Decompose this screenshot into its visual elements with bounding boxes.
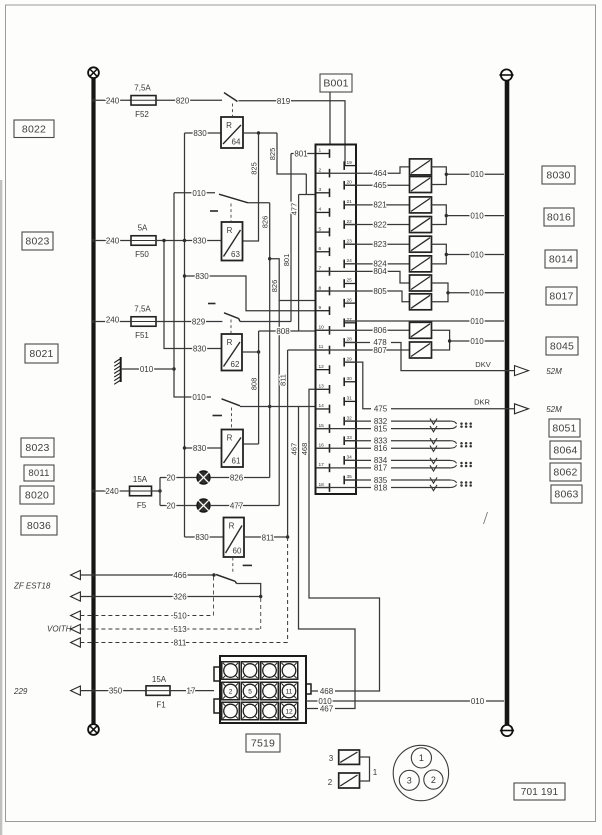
svg-text:826: 826 (270, 280, 279, 293)
svg-text:477: 477 (230, 502, 244, 511)
svg-text:23: 23 (347, 238, 353, 244)
svg-text:17: 17 (319, 462, 325, 468)
svg-text:010: 010 (470, 337, 484, 346)
svg-text:478: 478 (373, 338, 387, 347)
svg-text:8: 8 (319, 285, 322, 291)
svg-text:8017: 8017 (549, 291, 573, 303)
svg-text:801: 801 (294, 150, 308, 159)
svg-text:805: 805 (373, 287, 387, 296)
svg-text:52M: 52M (546, 367, 562, 376)
svg-text:11: 11 (319, 344, 324, 350)
svg-text:3: 3 (407, 776, 412, 786)
svg-text:808: 808 (276, 327, 290, 336)
svg-text:825: 825 (250, 162, 259, 175)
svg-text:010: 010 (471, 697, 485, 706)
svg-text:20: 20 (167, 502, 176, 511)
svg-text:62: 62 (231, 360, 240, 369)
svg-text:701 191: 701 191 (521, 787, 559, 798)
svg-text:16: 16 (319, 442, 325, 448)
svg-text:63: 63 (231, 250, 240, 259)
svg-text:25: 25 (347, 278, 353, 284)
svg-text:31: 31 (347, 396, 353, 402)
svg-text:15A: 15A (152, 675, 167, 684)
svg-text:010: 010 (192, 393, 206, 402)
svg-text:1: 1 (419, 753, 424, 763)
svg-text:7,5A: 7,5A (134, 84, 151, 93)
svg-text:010: 010 (192, 189, 206, 198)
svg-text:33: 33 (347, 435, 353, 441)
svg-text:7,5A: 7,5A (134, 305, 151, 314)
svg-text:VOITH: VOITH (47, 625, 72, 634)
svg-text:28: 28 (347, 337, 353, 343)
svg-text:19: 19 (347, 160, 353, 166)
svg-text:8062: 8062 (553, 467, 577, 479)
svg-text:464: 464 (373, 169, 387, 178)
svg-text:1: 1 (319, 148, 322, 154)
svg-text:26: 26 (347, 297, 353, 303)
svg-text:822: 822 (373, 220, 387, 229)
svg-text:821: 821 (373, 201, 387, 210)
svg-text:R: R (227, 338, 233, 347)
svg-text:4: 4 (319, 207, 322, 213)
svg-text:829: 829 (192, 318, 206, 327)
svg-text:20: 20 (167, 474, 176, 483)
svg-text:820: 820 (176, 96, 190, 105)
svg-text:510: 510 (173, 612, 187, 621)
svg-text:467: 467 (290, 443, 299, 456)
svg-text:830: 830 (193, 237, 207, 246)
svg-text:2: 2 (229, 688, 233, 695)
svg-text:830: 830 (195, 533, 209, 542)
svg-text:61: 61 (232, 457, 241, 466)
svg-text:20: 20 (347, 179, 353, 185)
svg-text:DKV: DKV (475, 360, 490, 369)
svg-text:8045: 8045 (550, 341, 574, 353)
svg-text:819: 819 (277, 97, 291, 106)
svg-text:240: 240 (106, 96, 120, 105)
svg-text:2: 2 (319, 167, 322, 173)
svg-text:465: 465 (373, 181, 387, 190)
svg-text:477: 477 (290, 203, 299, 216)
svg-text:24: 24 (347, 258, 353, 264)
svg-text:466: 466 (173, 571, 187, 580)
svg-text:29: 29 (347, 356, 353, 362)
svg-text:14: 14 (319, 403, 325, 409)
svg-text:240: 240 (106, 237, 120, 246)
svg-text:350: 350 (109, 687, 123, 696)
svg-text:F52: F52 (135, 110, 149, 119)
svg-text:8064: 8064 (553, 445, 577, 457)
svg-text:8030: 8030 (546, 170, 570, 182)
svg-text:8011: 8011 (28, 468, 49, 479)
svg-text:ZF EST18: ZF EST18 (13, 582, 51, 591)
svg-text:826: 826 (230, 474, 244, 483)
svg-text:35: 35 (347, 474, 353, 480)
svg-text:22: 22 (347, 219, 353, 225)
svg-text:8023: 8023 (25, 442, 49, 454)
svg-text:60: 60 (233, 547, 242, 556)
svg-text:823: 823 (373, 240, 387, 249)
svg-text:467: 467 (320, 705, 334, 714)
svg-text:818: 818 (374, 483, 388, 492)
svg-text:6: 6 (319, 246, 322, 252)
svg-text:825: 825 (268, 148, 277, 161)
svg-text:9: 9 (319, 305, 322, 311)
svg-text:240: 240 (105, 487, 119, 496)
svg-text:2: 2 (328, 778, 333, 787)
svg-text:817: 817 (374, 464, 388, 473)
svg-text:240: 240 (106, 316, 120, 325)
svg-text:R: R (227, 226, 233, 235)
svg-text:816: 816 (374, 444, 388, 453)
svg-text:30: 30 (347, 376, 353, 382)
svg-text:804: 804 (373, 267, 387, 276)
svg-text:010: 010 (470, 170, 484, 179)
svg-text:F1: F1 (156, 701, 166, 710)
svg-text:815: 815 (374, 424, 388, 433)
svg-text:21: 21 (347, 199, 353, 205)
svg-text:12: 12 (319, 364, 325, 370)
svg-text:10: 10 (319, 325, 325, 331)
svg-text:1: 1 (373, 768, 378, 777)
svg-text:229: 229 (13, 687, 28, 696)
svg-text:8020: 8020 (25, 490, 49, 502)
svg-text:8063: 8063 (554, 489, 578, 501)
svg-text:64: 64 (232, 138, 241, 147)
svg-text:830: 830 (193, 129, 207, 138)
svg-text:826: 826 (261, 216, 270, 229)
svg-text:830: 830 (195, 272, 209, 281)
svg-text:5: 5 (248, 688, 252, 695)
svg-text:010: 010 (470, 211, 484, 220)
svg-text:475: 475 (374, 405, 388, 414)
svg-text:010: 010 (470, 317, 484, 326)
svg-text:13: 13 (319, 384, 325, 390)
svg-text:2: 2 (431, 775, 436, 785)
svg-text:8051: 8051 (552, 423, 576, 435)
svg-text:R: R (227, 434, 233, 443)
svg-text:B001: B001 (323, 78, 348, 90)
svg-text:15A: 15A (133, 475, 148, 484)
svg-text:7: 7 (319, 266, 322, 272)
svg-text:F51: F51 (135, 331, 149, 340)
svg-text:3: 3 (329, 754, 334, 763)
svg-text:010: 010 (140, 365, 154, 374)
svg-text:806: 806 (373, 326, 387, 335)
svg-text:17: 17 (187, 687, 196, 696)
svg-text:811: 811 (174, 639, 187, 648)
svg-text:F50: F50 (135, 250, 149, 259)
svg-text:326: 326 (173, 593, 187, 602)
svg-text:5: 5 (319, 226, 322, 232)
svg-text:8023: 8023 (25, 236, 49, 248)
svg-text:8021: 8021 (29, 348, 53, 360)
svg-text:8016: 8016 (547, 212, 571, 224)
svg-text:468: 468 (300, 443, 309, 456)
svg-text:27: 27 (347, 317, 353, 323)
svg-text:811: 811 (279, 374, 288, 386)
svg-text:R: R (226, 121, 232, 130)
svg-text:12: 12 (285, 708, 293, 715)
svg-text:830: 830 (193, 345, 207, 354)
svg-text:32: 32 (347, 415, 353, 421)
svg-text:808: 808 (250, 378, 259, 391)
svg-text:5A: 5A (138, 224, 148, 233)
svg-text:513: 513 (173, 625, 187, 634)
svg-text:811: 811 (262, 534, 275, 543)
svg-text:010: 010 (470, 289, 484, 298)
svg-text:7519: 7519 (251, 738, 275, 750)
svg-text:15: 15 (319, 423, 325, 429)
svg-text:3: 3 (319, 187, 322, 193)
svg-text:R: R (229, 522, 235, 531)
svg-text:468: 468 (320, 687, 334, 696)
svg-text:DKR: DKR (474, 398, 490, 407)
svg-text:830: 830 (193, 444, 207, 453)
svg-text:34: 34 (347, 455, 353, 461)
svg-text:11: 11 (286, 688, 293, 695)
svg-text:18: 18 (319, 482, 325, 488)
svg-text:010: 010 (470, 250, 484, 259)
svg-text:8014: 8014 (549, 254, 573, 266)
svg-text:8036: 8036 (27, 520, 51, 532)
svg-text:801: 801 (282, 254, 291, 267)
svg-text:52M: 52M (546, 405, 562, 414)
svg-text:F5: F5 (137, 501, 147, 510)
svg-text:8022: 8022 (22, 123, 46, 135)
